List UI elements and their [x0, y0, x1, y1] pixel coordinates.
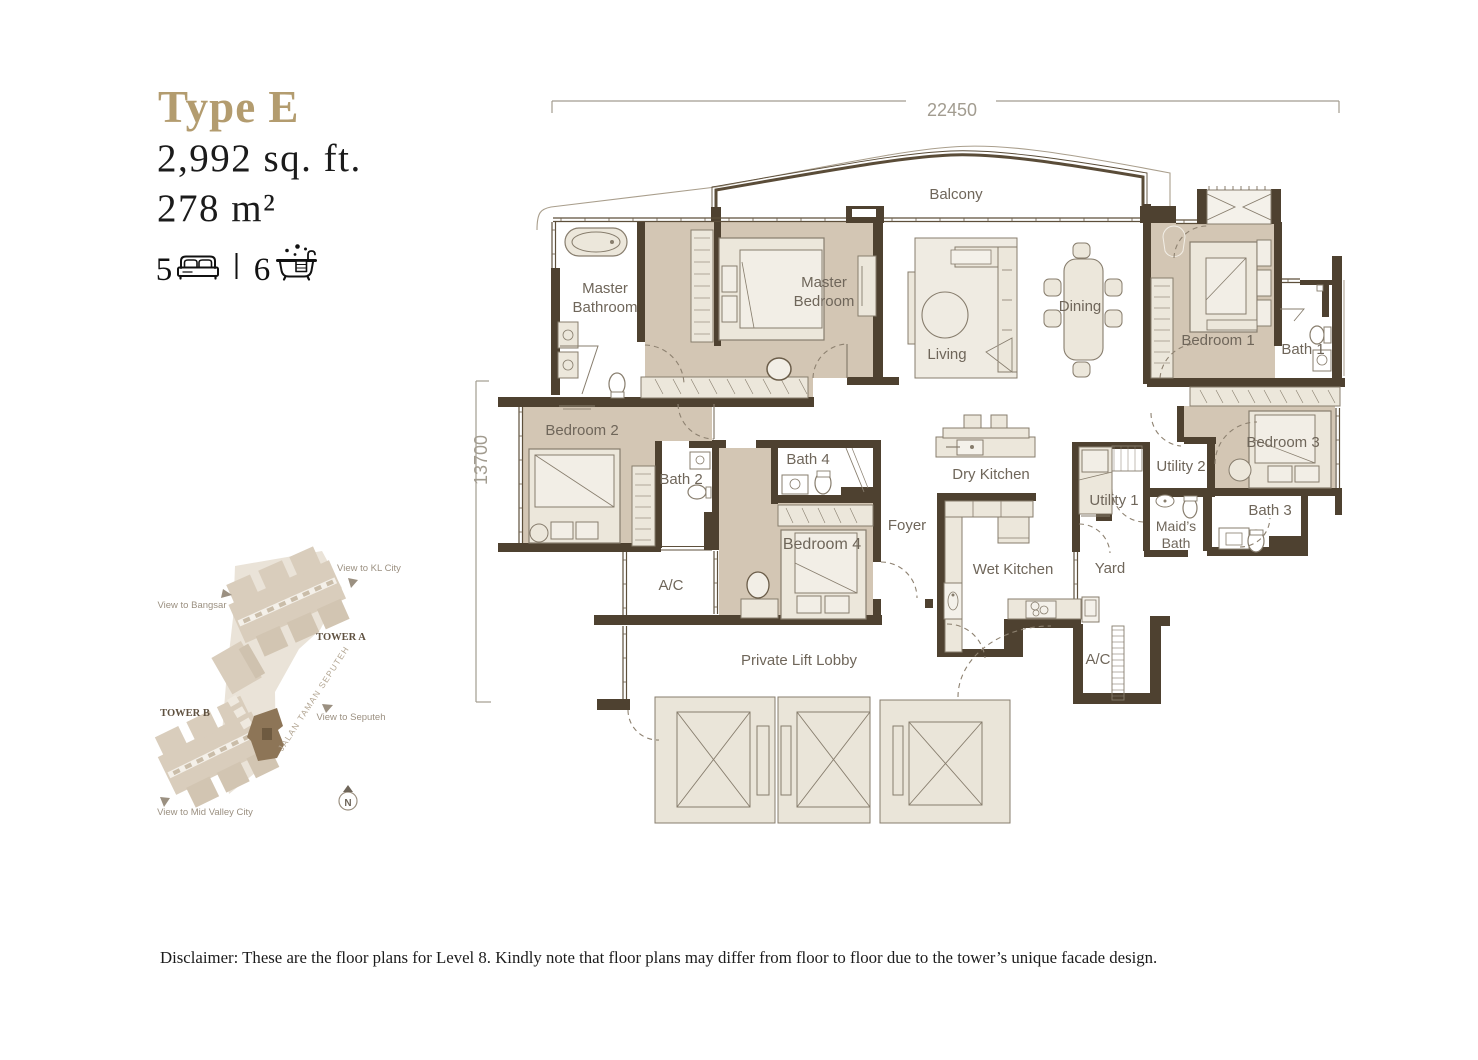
svg-text:Dining: Dining: [1059, 298, 1102, 315]
svg-text:Bath 3: Bath 3: [1248, 502, 1291, 519]
svg-text:22450: 22450: [927, 100, 977, 120]
svg-text:View to Mid Valley City: View to Mid Valley City: [157, 807, 253, 818]
svg-text:Bath 2: Bath 2: [659, 471, 702, 488]
svg-text:A/C: A/C: [1085, 651, 1110, 668]
svg-text:View to KL City: View to KL City: [337, 563, 401, 574]
svg-text:Master: Master: [582, 280, 628, 297]
svg-text:Balcony: Balcony: [929, 186, 983, 203]
svg-text:TOWER A: TOWER A: [316, 632, 366, 643]
svg-text:Bath 4: Bath 4: [786, 451, 829, 468]
svg-text:Bedroom 2: Bedroom 2: [545, 422, 618, 439]
svg-text:Utility 1: Utility 1: [1089, 492, 1138, 509]
svg-text:Living: Living: [927, 346, 966, 363]
svg-text:6: 6: [254, 252, 271, 288]
svg-text:Bedroom 1: Bedroom 1: [1181, 332, 1254, 349]
svg-text:Bathroom: Bathroom: [572, 299, 637, 316]
svg-text:Private Lift Lobby: Private Lift Lobby: [741, 652, 857, 669]
svg-text:Bath: Bath: [1162, 535, 1191, 551]
svg-text:View to Bangsar: View to Bangsar: [157, 600, 226, 611]
svg-text:Wet Kitchen: Wet Kitchen: [973, 561, 1054, 578]
svg-text:Bedroom: Bedroom: [794, 293, 855, 310]
svg-text:Bedroom 3: Bedroom 3: [1246, 434, 1319, 451]
svg-text:A/C: A/C: [658, 577, 683, 594]
svg-text:Dry Kitchen: Dry Kitchen: [952, 466, 1030, 483]
svg-text:5: 5: [156, 252, 173, 288]
svg-text:Yard: Yard: [1095, 560, 1126, 577]
svg-text:Maid’s: Maid’s: [1156, 518, 1196, 534]
svg-text:TOWER B: TOWER B: [160, 708, 210, 719]
svg-text:Utility 2: Utility 2: [1156, 458, 1205, 475]
svg-text:Bath 1: Bath 1: [1281, 341, 1324, 358]
svg-text:Foyer: Foyer: [888, 517, 926, 534]
svg-text:N: N: [344, 798, 351, 809]
svg-text:Bedroom 4: Bedroom 4: [783, 536, 861, 553]
svg-text:Master: Master: [801, 274, 847, 291]
svg-text:View to Seputeh: View to Seputeh: [316, 712, 385, 723]
svg-text:13700: 13700: [471, 435, 491, 485]
